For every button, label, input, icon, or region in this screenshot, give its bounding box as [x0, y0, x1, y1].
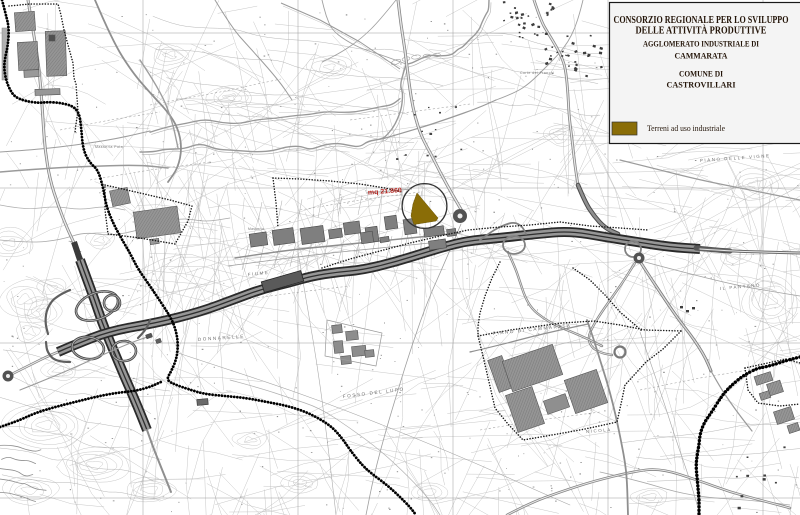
- svg-text:DELLE ATTIVITÀ PRODUTTIVE: DELLE ATTIVITÀ PRODUTTIVE: [636, 25, 767, 37]
- svg-text:CASTROVILLARI: CASTROVILLARI: [667, 80, 737, 90]
- svg-text:CAMMARATA: CAMMARATA: [675, 51, 729, 61]
- svg-text:Masseria Pola: Masseria Pola: [95, 145, 123, 149]
- svg-text:COMUNE DI: COMUNE DI: [679, 69, 724, 79]
- svg-text:Terreni ad uso industriale: Terreni ad uso industriale: [647, 123, 725, 133]
- svg-text:Corte dei Franchi: Corte dei Franchi: [520, 71, 554, 75]
- svg-text:AGGLOMERATO INDUSTRIALE DI: AGGLOMERATO INDUSTRIALE DI: [643, 39, 760, 49]
- svg-text:Masseria: Masseria: [248, 227, 264, 231]
